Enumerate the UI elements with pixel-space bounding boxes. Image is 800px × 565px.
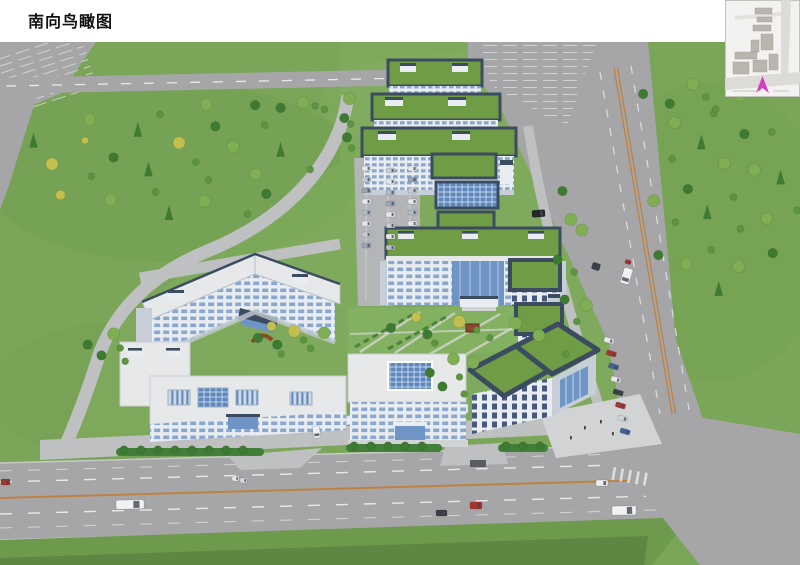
bus-shelter <box>470 460 486 467</box>
tree <box>340 113 350 123</box>
tree <box>300 337 307 344</box>
tree <box>56 190 66 200</box>
tree <box>88 173 95 180</box>
tree <box>244 211 251 218</box>
tree <box>510 317 522 329</box>
car <box>532 210 545 218</box>
parked-car <box>408 210 417 215</box>
tree <box>453 315 465 327</box>
parked-car <box>408 177 417 182</box>
aerial-rendering <box>0 42 800 565</box>
tree <box>680 258 692 270</box>
hedge-row <box>346 444 442 452</box>
tree <box>347 121 354 128</box>
parked-car <box>386 245 395 250</box>
tree <box>261 122 268 129</box>
car <box>1 479 10 485</box>
parked-car <box>408 199 417 204</box>
parked-car <box>408 221 417 226</box>
tree <box>761 212 773 224</box>
tree <box>411 312 421 322</box>
tree <box>669 116 681 128</box>
bus <box>612 506 636 515</box>
bus <box>116 500 144 509</box>
tree <box>273 340 283 350</box>
tree <box>343 93 355 105</box>
tree <box>456 374 463 381</box>
tree <box>312 103 319 110</box>
tree <box>672 219 679 226</box>
tree <box>104 194 116 206</box>
parked-car <box>386 190 395 195</box>
tree <box>46 158 58 170</box>
tree <box>297 96 309 108</box>
tree <box>342 133 352 143</box>
parked-car <box>386 212 395 217</box>
tree <box>712 106 719 113</box>
tree <box>227 141 239 153</box>
tree <box>276 103 286 113</box>
tree <box>580 299 592 311</box>
parked-car <box>408 166 417 171</box>
parked-car <box>362 199 371 204</box>
parked-car <box>362 243 371 248</box>
tree <box>473 327 480 334</box>
tree <box>318 327 330 339</box>
tree <box>152 188 159 195</box>
tree <box>730 194 737 201</box>
parked-car <box>408 188 417 193</box>
tree <box>768 248 778 258</box>
inset-caption-marks <box>733 91 789 92</box>
parked-car <box>386 179 395 184</box>
tree <box>558 186 568 196</box>
tree <box>687 78 699 90</box>
tree <box>669 156 676 163</box>
tree <box>249 168 261 180</box>
tree <box>718 157 730 169</box>
page-title: 南向鸟瞰图 <box>28 8 113 32</box>
tree <box>348 144 355 151</box>
tree <box>732 260 744 272</box>
car <box>470 502 482 509</box>
tree <box>461 390 468 397</box>
tree <box>431 340 438 347</box>
tree <box>200 98 212 110</box>
tree <box>576 224 588 236</box>
tree <box>84 114 96 126</box>
tree <box>638 89 648 99</box>
tree <box>253 333 263 343</box>
tree <box>702 94 709 101</box>
tree <box>122 358 129 365</box>
parked-car <box>386 201 395 206</box>
car <box>232 476 239 481</box>
tree <box>563 351 570 358</box>
parked-car <box>362 221 371 226</box>
parked-car <box>362 177 371 182</box>
tree <box>425 368 435 378</box>
tree <box>108 328 120 340</box>
location-inset-map <box>725 0 800 97</box>
car <box>312 426 321 439</box>
tree <box>486 334 493 341</box>
tree <box>573 318 580 325</box>
tree <box>467 357 479 369</box>
tree <box>560 295 570 305</box>
tree <box>386 323 396 333</box>
tree <box>117 345 124 352</box>
tree <box>447 353 459 365</box>
tree <box>109 153 119 163</box>
tree <box>307 166 314 173</box>
tree <box>267 321 277 331</box>
tree <box>683 184 693 194</box>
parked-car <box>386 223 395 228</box>
tree <box>157 111 164 118</box>
tree <box>423 330 433 340</box>
tree <box>288 325 300 337</box>
tree <box>250 100 260 110</box>
tree <box>768 128 775 135</box>
building-slab-1 <box>388 60 482 97</box>
page: 南向鸟瞰图 <box>0 0 800 565</box>
parked-car <box>386 168 395 173</box>
tree <box>648 195 660 207</box>
tree <box>438 382 448 392</box>
tree <box>737 225 744 232</box>
tree <box>533 329 545 341</box>
parked-car <box>362 210 371 215</box>
tree <box>321 106 328 113</box>
parked-car <box>362 232 371 237</box>
tree <box>708 246 715 253</box>
tree <box>553 255 563 265</box>
tree <box>748 164 760 176</box>
tree <box>571 269 578 276</box>
tree <box>307 345 314 352</box>
tree <box>565 213 577 225</box>
car <box>436 510 447 516</box>
tree <box>740 129 750 139</box>
tree <box>192 159 199 166</box>
tree <box>82 137 89 144</box>
tree <box>97 351 107 361</box>
tree <box>278 350 285 357</box>
tree <box>83 340 93 350</box>
car <box>596 480 608 486</box>
tree <box>211 122 221 132</box>
tree <box>665 99 675 109</box>
tree <box>173 137 185 149</box>
parked-car <box>386 234 395 239</box>
tree <box>794 207 800 214</box>
parked-car <box>362 188 371 193</box>
parked-car <box>362 166 371 171</box>
tree <box>262 189 272 199</box>
car <box>240 478 247 483</box>
tree <box>654 250 664 260</box>
tree <box>205 177 212 184</box>
tree <box>199 195 211 207</box>
